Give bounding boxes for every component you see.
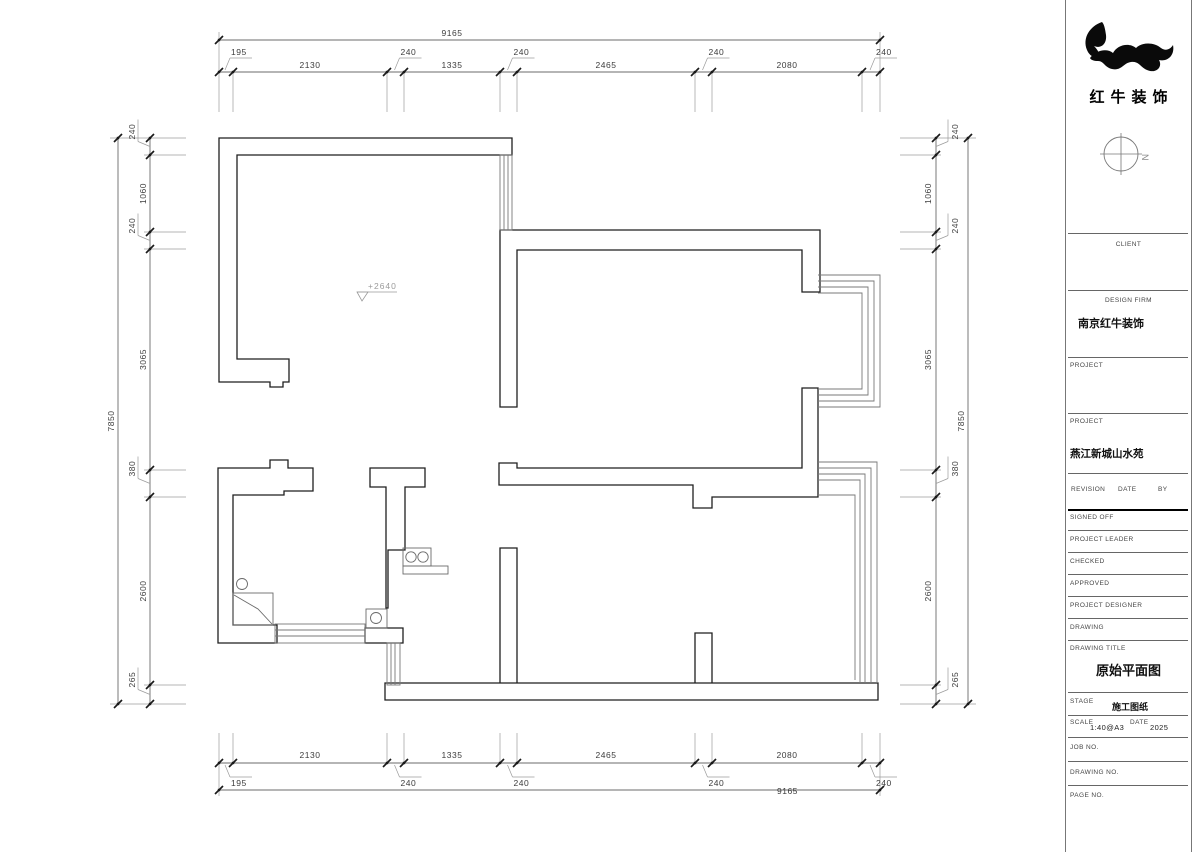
dim-tick-dot [879,762,881,764]
dim-tick-dot [232,762,234,764]
date2-label: DATE [1130,719,1148,726]
north-label: N [1140,154,1150,161]
dim-tick-dot [935,469,937,471]
approved-label: APPROVED [1070,580,1109,587]
dim-label: 2465 [596,60,617,70]
stage-label: STAGE [1070,698,1094,705]
dim-label: 1060 [923,183,933,204]
dim-tick-dot [149,496,151,498]
dim-tick-dot [149,703,151,705]
divider [1068,737,1188,738]
dim-tick-dot [967,703,969,705]
window-top-connector [500,155,512,230]
dim-label: 195 [231,47,247,57]
dim-line [936,142,948,147]
redbull-logo-icon [1074,20,1182,82]
dim-tick-dot [967,137,969,139]
dim-label: 2465 [596,750,617,760]
dim-tick-dot [218,762,220,764]
dim-tick-dot [935,231,937,233]
project-label-2: PROJECT [1070,418,1103,425]
dim-line [870,765,875,777]
dim-label: 265 [950,672,960,688]
project-value: 燕江新城山水苑 [1070,446,1144,461]
wall-interior-vertical [500,548,517,685]
dim-tick-dot [403,762,405,764]
dim-label: 3065 [138,349,148,370]
dim-label: 240 [876,778,892,788]
dim-tick-dot [149,684,151,686]
wall-bathroom-corner [365,628,403,643]
divider [1068,233,1188,234]
dim-tick-dot [935,154,937,156]
dim-tick-dot [232,71,234,73]
fixtures [233,548,448,628]
dim-line [138,690,150,695]
stove-icon [403,548,448,574]
dim-tick-dot [386,71,388,73]
dim-tick-dot [935,496,937,498]
dim-tick-dot [935,137,937,139]
window-bathroom [275,624,365,643]
wall-outlines [218,138,878,700]
divider [1068,618,1188,619]
dim-label: 380 [950,461,960,477]
dim-line [870,58,875,70]
design-firm-label: DESIGN FIRM [1066,297,1191,304]
dim-line [508,58,513,70]
divider [1068,715,1188,716]
floor-plan-canvas: +2640 9165195213024013352402465240208024… [0,0,1065,852]
wall-bottom [385,683,878,700]
dim-label: 2600 [138,581,148,602]
dim-tick-dot [149,469,151,471]
dim-label: 1060 [138,183,148,204]
dim-tick-dot [218,789,220,791]
dim-label: 3065 [923,349,933,370]
dim-line [936,479,948,484]
divider [1068,640,1188,641]
dim-tick-dot [879,39,881,41]
dim-tick-dot [711,762,713,764]
client-label: CLIENT [1066,241,1191,248]
project-leader-label: PROJECT LEADER [1070,536,1134,543]
dim-tick-dot [694,762,696,764]
dim-label: 240 [401,778,417,788]
dim-tick-dot [694,71,696,73]
dim-tick-dot [117,703,119,705]
dim-label: 2080 [777,60,798,70]
north-compass-icon: N [1066,128,1191,180]
dim-line [508,765,513,777]
drawing-title-label: DRAWING TITLE [1070,645,1126,652]
dim-tick-dot [861,71,863,73]
dim-tick-dot [149,137,151,139]
dim-line [138,236,150,241]
wall-kitchen-tee [370,468,425,608]
divider [1068,692,1188,693]
dim-label: 9165 [442,28,463,38]
dim-label: 2080 [777,750,798,760]
dim-tick-dot [935,684,937,686]
dim-tick-dot [117,137,119,139]
scale-value: 1:40@A3 [1090,723,1124,732]
dim-label: 2130 [300,750,321,760]
dim-tick-dot [499,762,501,764]
dim-label: 240 [127,218,137,234]
dim-tick-dot [386,762,388,764]
dim-tick-dot [711,71,713,73]
dim-line [138,142,150,147]
dim-tick-dot [499,71,501,73]
dim-label: 240 [876,47,892,57]
dim-label: 240 [401,47,417,57]
signed-off-label: SIGNED OFF [1070,514,1114,521]
dim-line [703,765,708,777]
dim-tick-dot [879,789,881,791]
divider [1068,413,1188,414]
divider [1068,473,1188,474]
date-label: DATE [1118,486,1136,493]
dim-line [395,765,400,777]
level-marker: +2640 [357,281,397,301]
project-label-1: PROJECT [1070,362,1103,369]
dim-label: 2130 [300,60,321,70]
wall-door-stub [695,633,712,685]
dim-label: 240 [127,124,137,140]
dim-label: 1335 [442,750,463,760]
drawing-no-label: DRAWING NO. [1070,769,1119,776]
divider [1068,290,1188,291]
dim-line [936,690,948,695]
level-marker-text: +2640 [368,281,397,291]
divider [1068,530,1188,531]
floor-drain-icon [237,579,248,590]
dim-label: 240 [709,778,725,788]
dim-tick-dot [218,71,220,73]
dim-tick-dot [218,39,220,41]
drawing-title-value: 原始平面图 [1066,660,1191,679]
dim-tick-dot [149,248,151,250]
dim-tick-dot [149,231,151,233]
title-block: 红牛装饰 N CLIENT DESIGN FIRM 南京红牛装饰 PROJECT… [1065,0,1192,852]
page-no-label: PAGE NO. [1070,792,1104,799]
dim-line [395,58,400,70]
dim-label: 9165 [777,786,798,796]
dim-label: 7850 [106,411,116,432]
design-firm-value: 南京红牛装饰 [1078,315,1144,331]
dim-label: 7850 [956,411,966,432]
divider [1068,552,1188,553]
date-value: 2025 [1150,723,1168,732]
dim-label: 265 [127,672,137,688]
divider-thick [1068,509,1188,511]
washer-icon [366,609,387,628]
dim-tick-dot [861,762,863,764]
dim-tick-dot [935,703,937,705]
dim-label: 240 [950,218,960,234]
dim-tick-dot [149,154,151,156]
wall-top-left-room [219,138,512,387]
dim-label: 380 [127,461,137,477]
dim-tick-dot [935,248,937,250]
wall-room-divider [499,388,818,508]
dim-label: 240 [709,47,725,57]
brand-name: 红牛装饰 [1066,86,1191,107]
checked-label: CHECKED [1070,558,1105,565]
dim-line [936,236,948,241]
corner-bay-window-bottom-right [818,462,877,683]
dim-tick-dot [516,762,518,764]
wall-bathroom [218,460,313,643]
dim-tick-dot [516,71,518,73]
dim-line [138,479,150,484]
dim-label: 2600 [923,581,933,602]
job-no-label: JOB NO. [1070,744,1099,751]
dim-label: 1335 [442,60,463,70]
divider [1068,574,1188,575]
divider [1068,761,1188,762]
divider [1068,357,1188,358]
revision-label: REVISION [1071,486,1105,493]
divider [1068,785,1188,786]
dim-label: 195 [231,778,247,788]
by-label: BY [1158,486,1167,493]
dim-tick-dot [403,71,405,73]
dim-tick-dot [879,71,881,73]
stage-value: 施工图纸 [1112,700,1148,713]
dim-label: 240 [514,47,530,57]
wall-top-right-room [500,230,820,407]
drawing-sheet: +2640 9165195213024013352402465240208024… [0,0,1200,852]
dim-line [703,58,708,70]
drawing-label: DRAWING [1070,624,1104,631]
dim-label: 240 [950,124,960,140]
shower-tray-icon [233,593,273,625]
dim-label: 240 [514,778,530,788]
window-bottom-connector [387,643,400,685]
project-designer-label: PROJECT DESIGNER [1070,602,1142,609]
bay-window-top-right [818,275,880,407]
divider [1068,596,1188,597]
dim-line [225,58,230,70]
